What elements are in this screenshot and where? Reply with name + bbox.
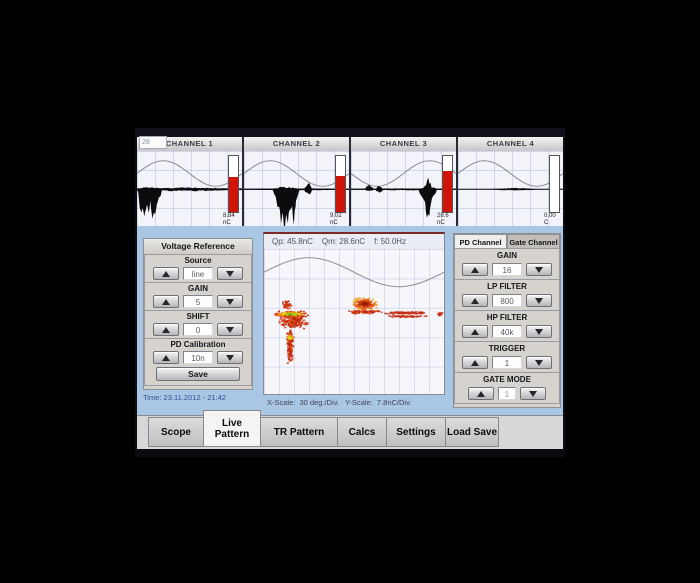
tab-calcs[interactable]: Calcs (337, 417, 387, 447)
qm-readout: Qm: 28.6nC (322, 234, 365, 249)
pd-calibration-down-button[interactable] (217, 351, 243, 364)
gate-mode-up-button[interactable] (468, 387, 494, 400)
up-arrow-icon (471, 360, 479, 366)
hp-filter-label: HP FILTER (455, 311, 559, 324)
window-content: CHANNEL 18.84nCCHANNEL 29.02nCCHANNEL 32… (137, 137, 563, 449)
instrument-window: CHANNEL 18.84nCCHANNEL 29.02nCCHANNEL 32… (135, 128, 565, 457)
channel-panel-3: CHANNEL 328.6nC (351, 137, 458, 226)
hp-filter-up-button[interactable] (462, 325, 488, 338)
charge-value-label: 28.6nC (437, 213, 455, 226)
trigger-value[interactable]: 1 (492, 356, 522, 369)
charge-bar-meter (335, 155, 346, 213)
vr-gain-group: GAIN5 (144, 282, 252, 311)
gate-mode-down-button[interactable] (520, 387, 546, 400)
source-label: Source (145, 255, 251, 266)
charge-bar-meter (549, 155, 560, 213)
source-up-button[interactable] (153, 267, 179, 280)
screen-background: CHANNEL 18.84nCCHANNEL 29.02nCCHANNEL 32… (0, 0, 700, 583)
channel-panel-1: CHANNEL 18.84nC (137, 137, 244, 226)
tab-tr-pattern[interactable]: TR Pattern (260, 417, 338, 447)
down-arrow-icon (226, 327, 234, 333)
pd-calibration-value[interactable]: 10n (183, 351, 213, 364)
vr-source-group: Sourceline (144, 254, 252, 283)
pd-calibration-label: PD Calibration (145, 339, 251, 350)
lp-filter-down-button[interactable] (526, 294, 552, 307)
down-arrow-icon (226, 299, 234, 305)
tab-gate-channel[interactable]: Gate Channel (507, 234, 560, 249)
shift-label: SHIFT (145, 311, 251, 322)
channel-waveform-display: 0.00C (458, 151, 563, 226)
up-arrow-icon (162, 271, 170, 277)
lp-filter-up-button[interactable] (462, 294, 488, 307)
vr-pd-calibration-group: PD Calibration10nSave (144, 338, 252, 386)
qp-readout: Qp: 45.8nC (272, 234, 313, 249)
source-value[interactable]: line (183, 267, 213, 280)
gain-label: GAIN (455, 249, 559, 262)
down-arrow-icon (535, 267, 543, 273)
up-arrow-icon (471, 329, 479, 335)
trigger-up-button[interactable] (462, 356, 488, 369)
bottom-tab-bar: ScopeLive PatternTR PatternCalcsSettings… (137, 415, 563, 449)
down-arrow-icon (529, 391, 537, 397)
hp-filter-value[interactable]: 40k (492, 325, 522, 338)
scale-label: X-Scale: 30 deg./Div. Y-Scale: 7.8nC/Div… (263, 398, 445, 407)
cs-lp-filter-group: LP FILTER800 (454, 279, 560, 311)
charge-bar-fill (443, 171, 452, 212)
vr-shift-group: SHIFT0 (144, 310, 252, 339)
down-arrow-icon (535, 329, 543, 335)
channel-header: CHANNEL 4 (458, 137, 563, 152)
channel-settings-tabs: PD ChannelGate Channel (454, 234, 560, 249)
tab-load-save[interactable]: Load Save (445, 417, 499, 447)
down-arrow-icon (226, 355, 234, 361)
shift-up-button[interactable] (153, 323, 179, 336)
lp-filter-label: LP FILTER (455, 280, 559, 293)
channel-settings-groups: GAIN16LP FILTER800HP FILTER40kTRIGGER1GA… (454, 248, 560, 404)
channel-waveform-display: 28.6nC (351, 151, 456, 226)
up-arrow-icon (471, 298, 479, 304)
charge-bar-fill (229, 177, 238, 212)
charge-value-label: 0.00C (544, 213, 562, 226)
lp-filter-value[interactable]: 800 (492, 294, 522, 307)
shift-value[interactable]: 0 (183, 323, 213, 336)
trigger-label: TRIGGER (455, 342, 559, 355)
charge-bar-fill (336, 176, 345, 212)
up-arrow-icon (162, 327, 170, 333)
channel-strip: CHANNEL 18.84nCCHANNEL 29.02nCCHANNEL 32… (137, 137, 563, 226)
save-button[interactable]: Save (156, 367, 240, 381)
down-arrow-icon (535, 298, 543, 304)
trigger-down-button[interactable] (526, 356, 552, 369)
gain-value[interactable]: 16 (492, 263, 522, 276)
cs-gate-mode-group: GATE MODE1 (454, 372, 560, 404)
down-arrow-icon (535, 360, 543, 366)
up-arrow-icon (162, 299, 170, 305)
pattern-readout-bar: Qp: 45.8nC Qm: 28.6nC f: 50.0Hz (264, 234, 444, 250)
cs-gain-group: GAIN16 (454, 248, 560, 280)
charge-bar-meter (442, 155, 453, 213)
channel-header: CHANNEL 2 (244, 137, 349, 152)
channel-settings-panel: PD ChannelGate Channel GAIN16LP FILTER80… (453, 233, 561, 408)
gain-label: GAIN (145, 283, 251, 294)
tab-scope[interactable]: Scope (148, 417, 204, 447)
tab-live-pattern[interactable]: Live Pattern (203, 410, 261, 447)
charge-value-label: 8.84nC (223, 213, 241, 226)
frequency-readout: f: 50.0Hz (374, 234, 406, 249)
tab-settings[interactable]: Settings (386, 417, 446, 447)
window-bottom-edge (135, 449, 565, 457)
channel-waveform-display: 8.84nC (137, 151, 242, 226)
gate-mode-value[interactable]: 1 (498, 387, 516, 400)
gain-value[interactable]: 5 (183, 295, 213, 308)
pd-calibration-up-button[interactable] (153, 351, 179, 364)
down-arrow-icon (226, 271, 234, 277)
channel-panel-2: CHANNEL 29.02nC (244, 137, 351, 226)
channel-waveform-display: 9.02nC (244, 151, 349, 226)
charge-bar-meter (228, 155, 239, 213)
up-arrow-icon (477, 391, 485, 397)
prpd-pattern-display (264, 249, 444, 394)
frame-counter: 28 (139, 136, 167, 149)
gain-down-button[interactable] (526, 263, 552, 276)
channel-panel-4: CHANNEL 40.00C (458, 137, 563, 226)
voltage-reference-groups: SourcelineGAIN5SHIFT0PD Calibration10nSa… (144, 254, 252, 386)
charge-value-label: 9.02nC (330, 213, 348, 226)
up-arrow-icon (471, 267, 479, 273)
hp-filter-down-button[interactable] (526, 325, 552, 338)
shift-down-button[interactable] (217, 323, 243, 336)
cs-trigger-group: TRIGGER1 (454, 341, 560, 373)
time-label: Time: 23.11.2012 - 21:42 (143, 393, 226, 402)
gain-up-button[interactable] (462, 263, 488, 276)
channel-header: CHANNEL 3 (351, 137, 456, 152)
source-down-button[interactable] (217, 267, 243, 280)
up-arrow-icon (162, 355, 170, 361)
voltage-reference-title: Voltage Reference (144, 239, 252, 255)
gain-down-button[interactable] (217, 295, 243, 308)
gain-up-button[interactable] (153, 295, 179, 308)
pattern-panel: Qp: 45.8nC Qm: 28.6nC f: 50.0Hz (263, 232, 445, 395)
gate-mode-label: GATE MODE (455, 373, 559, 386)
voltage-reference-panel: Voltage Reference SourcelineGAIN5SHIFT0P… (143, 238, 253, 390)
cs-hp-filter-group: HP FILTER40k (454, 310, 560, 342)
window-top-edge (135, 128, 565, 137)
tab-pd-channel[interactable]: PD Channel (454, 234, 507, 249)
